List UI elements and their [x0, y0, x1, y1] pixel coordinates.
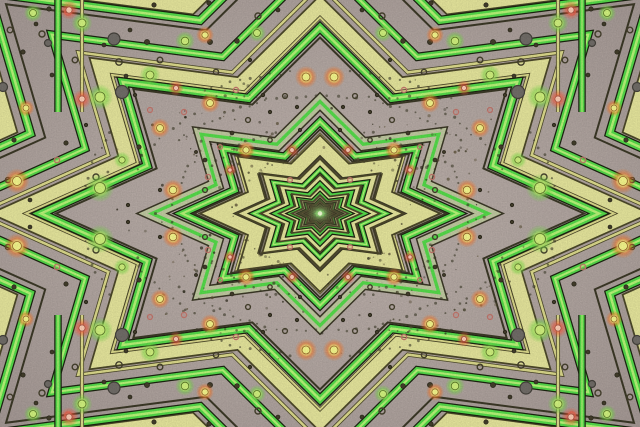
kaleidoscope-scene	[0, 0, 640, 427]
kaleidoscope-figure	[0, 0, 640, 427]
grain-overlay	[0, 0, 640, 427]
